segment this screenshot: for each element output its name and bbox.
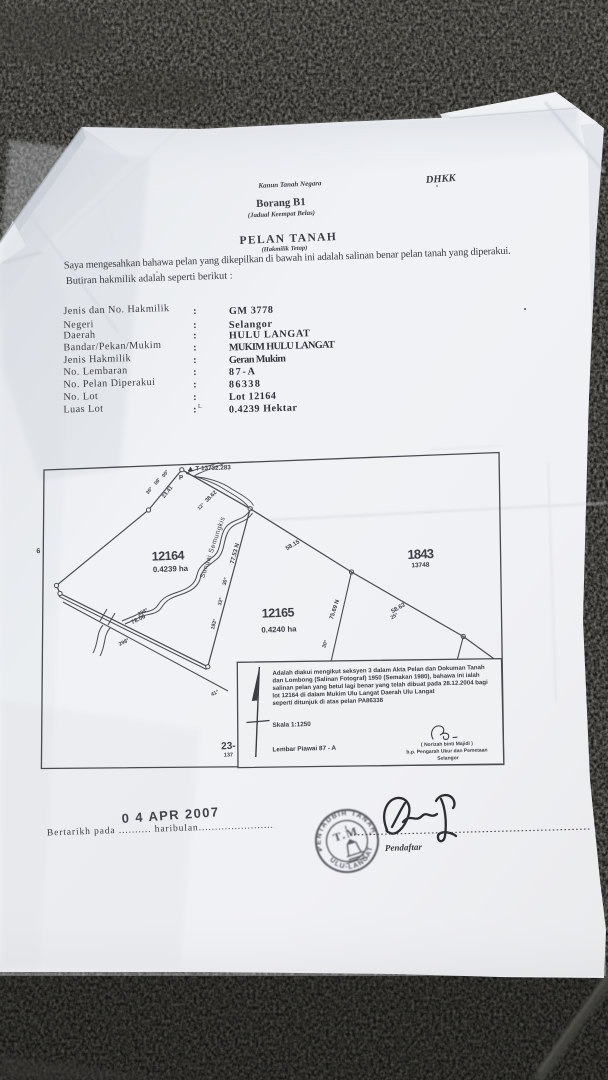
svg-text:12164: 12164 (151, 548, 184, 563)
svg-text:No. Lot: No. Lot (63, 391, 98, 403)
svg-text::: : (193, 342, 197, 353)
svg-text::: : (193, 367, 197, 378)
svg-text::: : (193, 404, 197, 415)
svg-text::: : (193, 392, 197, 403)
svg-text:Pendaftar: Pendaftar (385, 842, 423, 853)
svg-text::: : (193, 355, 197, 366)
svg-text:Skala 1:1250: Skala 1:1250 (272, 721, 311, 729)
svg-text:Daerah: Daerah (63, 330, 95, 342)
svg-text:0.4239 Hektar: 0.4239 Hektar (229, 403, 298, 416)
svg-text::: : (193, 379, 197, 390)
svg-text:Borang B1: Borang B1 (256, 196, 306, 210)
svg-text:DHKK: DHKK (424, 173, 456, 186)
svg-text:1843: 1843 (407, 546, 434, 562)
svg-text:87-A: 87-A (229, 366, 256, 378)
svg-text:86338: 86338 (229, 379, 260, 391)
svg-text:Selangor: Selangor (437, 755, 459, 762)
svg-text:Lot 12164: Lot 12164 (229, 391, 276, 403)
svg-text:0.4239 ha: 0.4239 ha (153, 564, 189, 574)
svg-text:No. Lembaran: No. Lembaran (63, 365, 128, 378)
svg-text:12165: 12165 (261, 605, 294, 620)
svg-text:T 13732.283: T 13732.283 (195, 464, 231, 472)
svg-text:6: 6 (36, 548, 40, 555)
svg-text:L: L (198, 404, 202, 410)
svg-text:GM 3778: GM 3778 (229, 305, 273, 317)
svg-text:0.4240 ha: 0.4240 ha (261, 624, 297, 634)
svg-text:Luas Lot: Luas Lot (63, 403, 103, 415)
svg-text:23-: 23- (221, 741, 236, 752)
svg-text:137: 137 (224, 752, 233, 758)
svg-text:Jenis Hakmilik: Jenis Hakmilik (63, 353, 131, 366)
svg-text::: : (193, 320, 197, 331)
svg-text:13748: 13748 (411, 562, 430, 570)
svg-text::: : (193, 330, 197, 341)
svg-text:Geran Mukim: Geran Mukim (229, 353, 287, 366)
svg-text:HULU LANGAT: HULU LANGAT (229, 328, 310, 341)
svg-text::: : (193, 306, 197, 317)
